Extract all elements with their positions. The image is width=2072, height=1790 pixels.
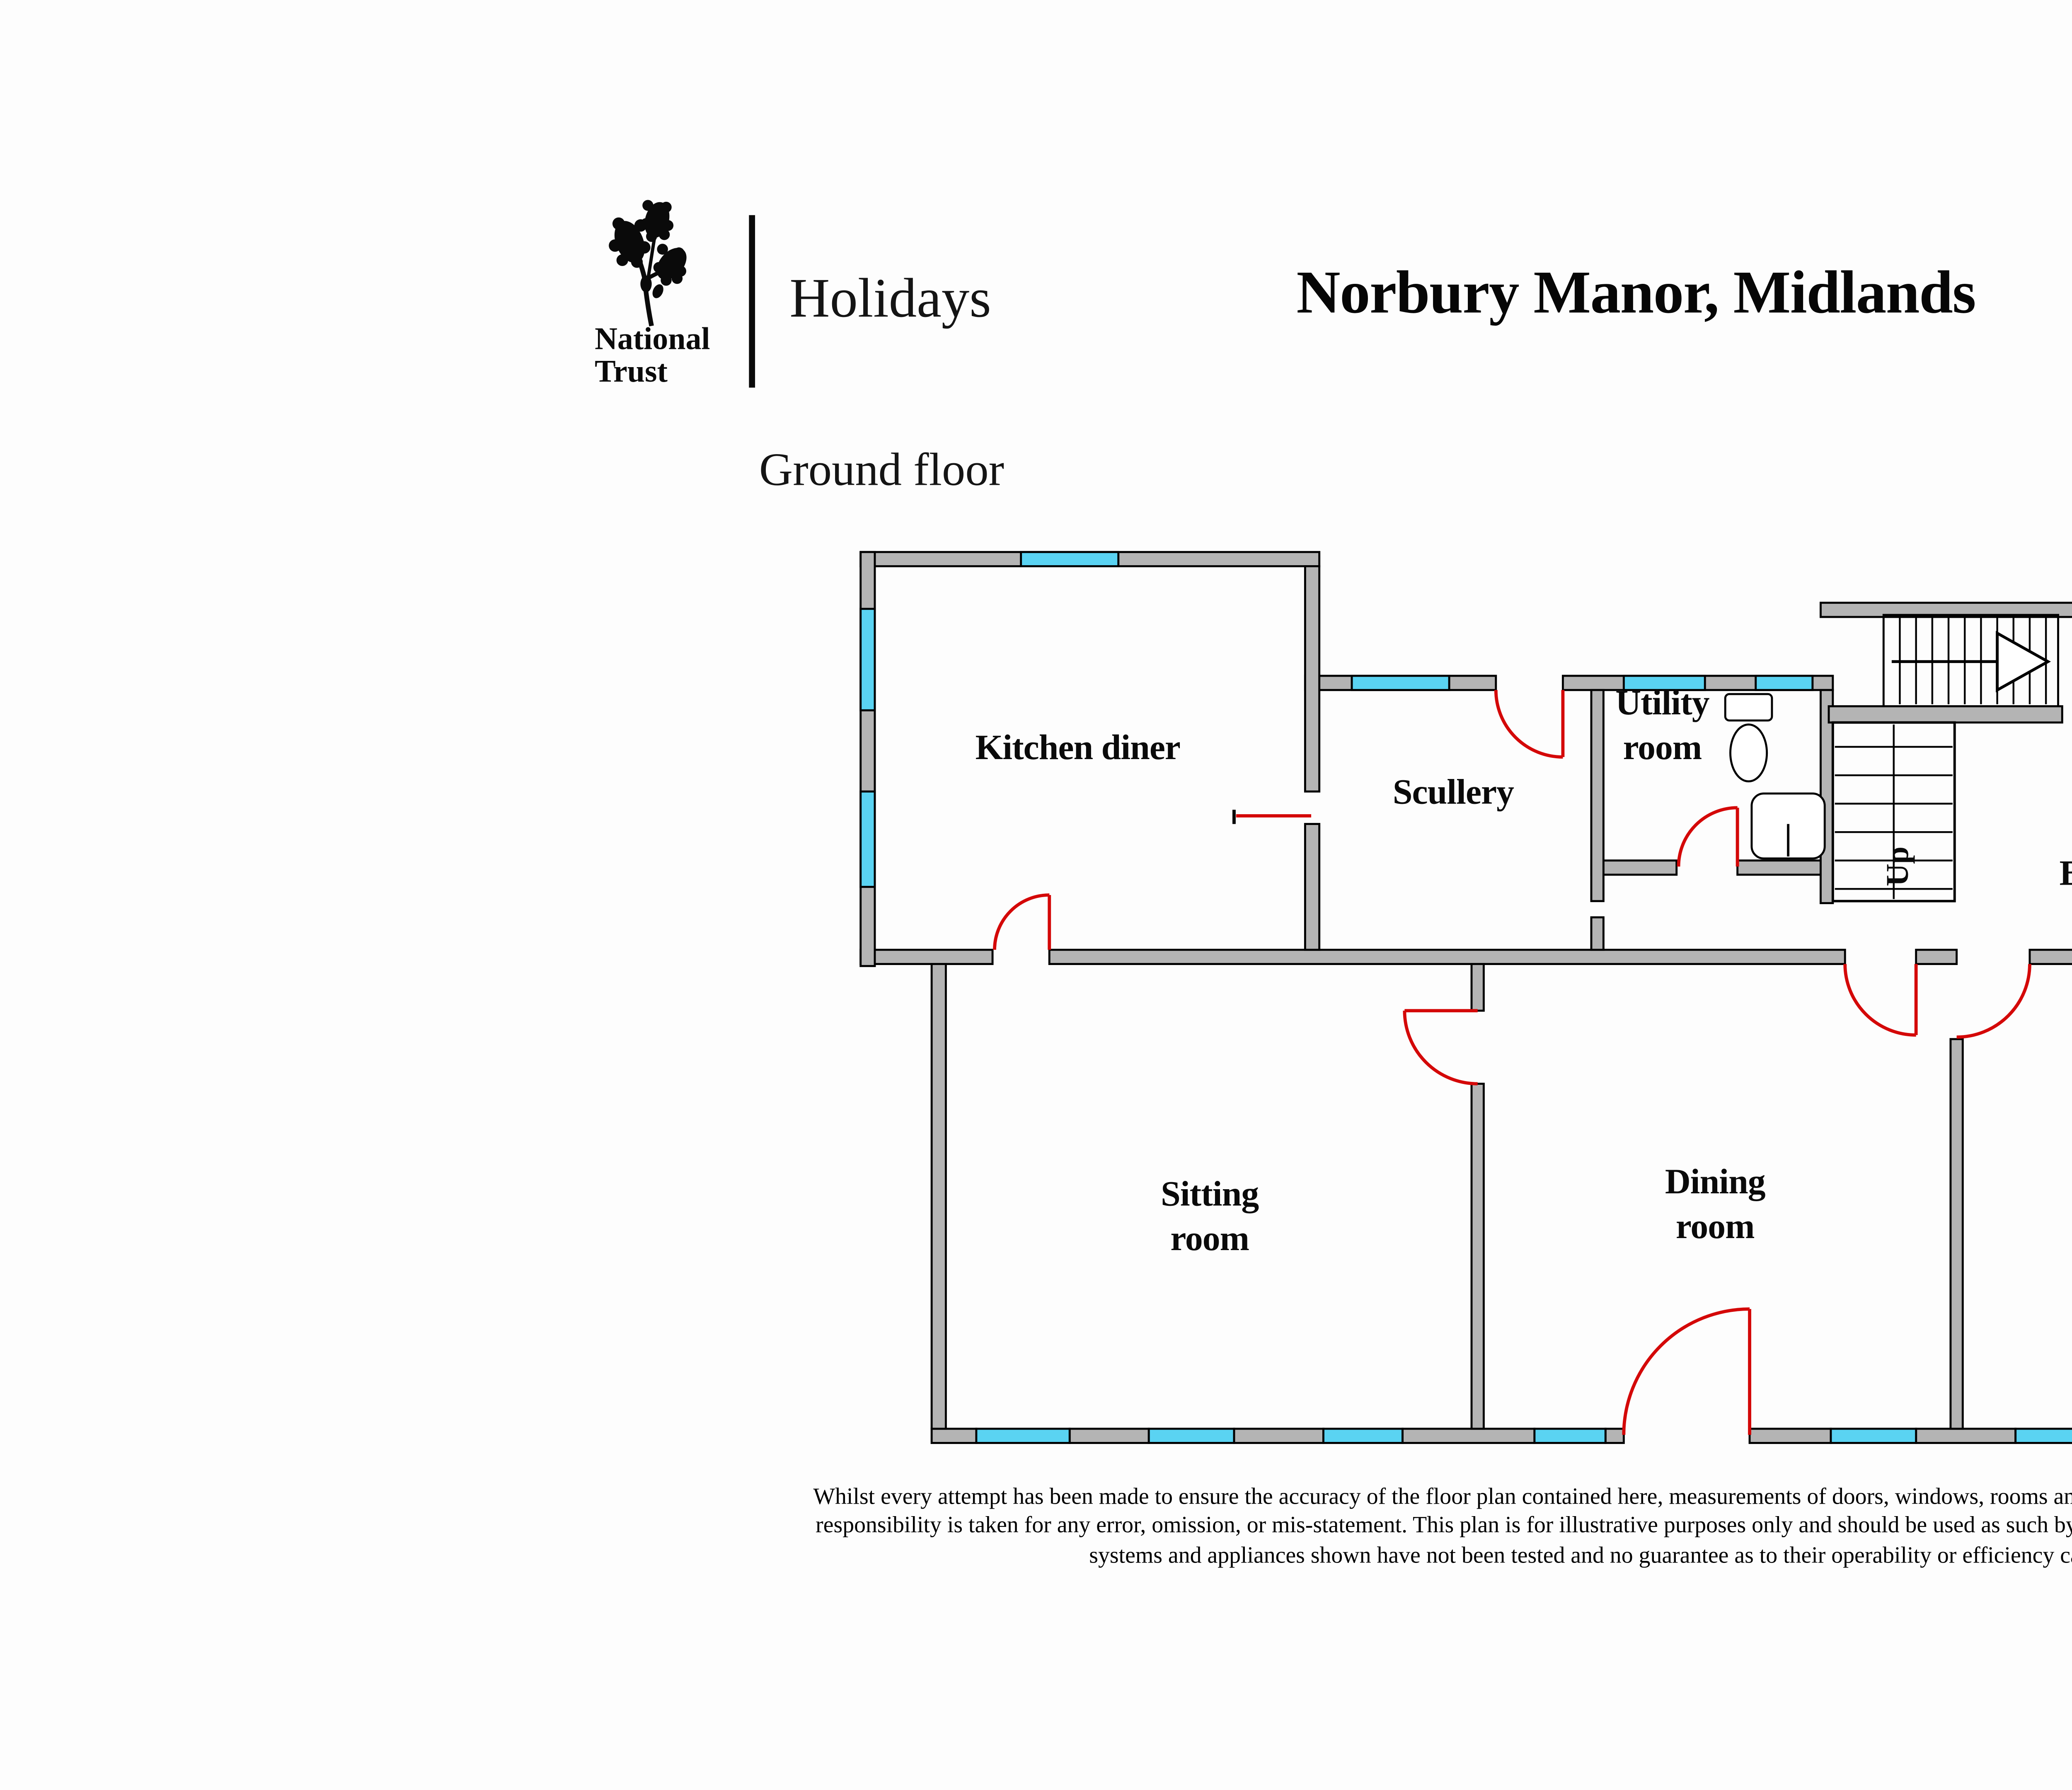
door-swing-arc xyxy=(1624,1309,1750,1435)
door-swing-arc xyxy=(1679,808,1738,866)
window xyxy=(2016,1429,2072,1443)
window xyxy=(861,791,875,887)
disclaimer-line-1: Whilst every attempt has been made to en… xyxy=(641,1483,2072,1512)
toilet-tank-icon xyxy=(1725,694,1772,721)
disclaimer-text: Whilst every attempt has been made to en… xyxy=(641,1483,2072,1570)
window xyxy=(1831,1429,1916,1443)
wall xyxy=(1951,1039,1963,1429)
wall xyxy=(1750,1429,1831,1443)
wall xyxy=(1049,950,1845,964)
wall xyxy=(1305,566,1319,792)
wall xyxy=(1070,1429,1149,1443)
door-swing-arc xyxy=(995,895,1049,950)
window xyxy=(861,609,875,710)
stairs-up-arrowhead-icon xyxy=(1997,633,2048,690)
wall xyxy=(1605,1429,1624,1443)
wall xyxy=(1402,1429,1534,1443)
door-swing-arc xyxy=(1845,964,1916,1035)
wall xyxy=(1591,917,1603,950)
wall xyxy=(932,964,946,1429)
window xyxy=(1535,1429,1605,1443)
window xyxy=(1624,676,1705,690)
stairs-landing xyxy=(1829,706,2062,722)
wall xyxy=(1738,861,1833,875)
door-swing-arc xyxy=(1957,964,2030,1037)
door-swing-arc xyxy=(1496,690,1563,757)
wall xyxy=(861,950,992,964)
door-swing-arc xyxy=(1404,1011,1477,1084)
window xyxy=(1756,676,1813,690)
toilet-bowl-icon xyxy=(1731,725,1767,781)
wall xyxy=(932,1429,976,1443)
wall xyxy=(1472,1084,1484,1429)
window xyxy=(1323,1429,1402,1443)
wall xyxy=(1472,964,1484,1011)
window xyxy=(1149,1429,1234,1443)
window xyxy=(976,1429,1070,1443)
window xyxy=(1021,552,1118,566)
floorplan-page: National Trust Holidays Norbury Manor, M… xyxy=(0,0,2072,1790)
wall xyxy=(1234,1429,1324,1443)
window xyxy=(1352,676,1449,690)
wall xyxy=(1916,1429,2016,1443)
disclaimer-line-2: responsibility is taken for any error, o… xyxy=(641,1512,2072,1541)
wall xyxy=(1591,690,1603,901)
wall xyxy=(1916,950,1957,964)
wall xyxy=(2030,950,2072,964)
disclaimer-line-3: systems and appliances shown have not be… xyxy=(641,1541,2072,1570)
wall xyxy=(1305,824,1319,950)
